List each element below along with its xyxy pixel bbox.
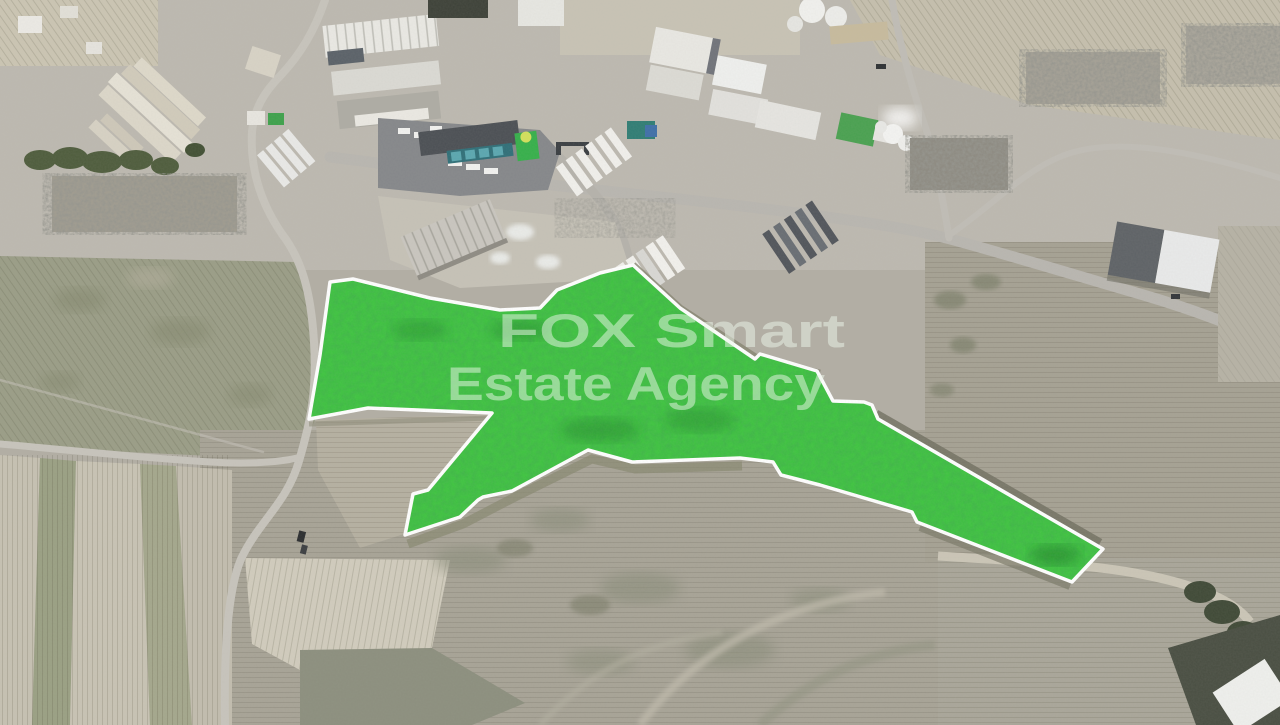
aerial-photo-canvas: FOX Smart Estate Agency: [0, 0, 1280, 725]
aerial-photo: FOX Smart Estate Agency: [0, 0, 1280, 725]
watermark-line-2: Estate Agency: [447, 357, 825, 410]
watermark-line-1: FOX Smart: [498, 304, 845, 357]
watermark: FOX Smart Estate Agency: [447, 304, 845, 410]
